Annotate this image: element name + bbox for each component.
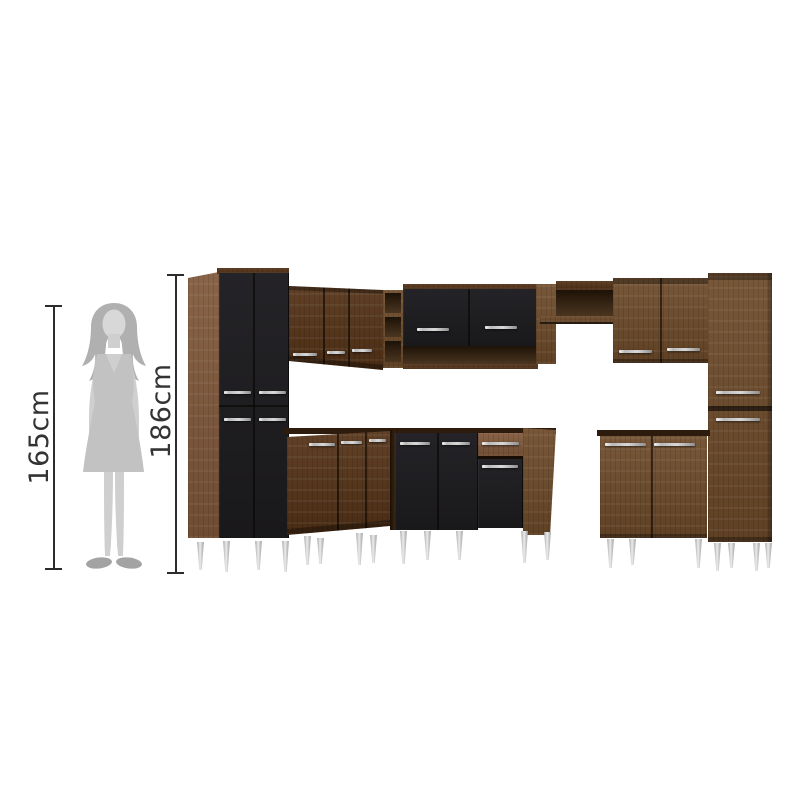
shelf-niche (385, 341, 401, 362)
furniture-dimension-cap-bottom (167, 572, 184, 574)
drawer-front (478, 433, 523, 456)
door-handle (667, 348, 700, 351)
silhouette-left-leg (104, 472, 113, 556)
cabinet-bottom-edge (708, 537, 772, 542)
bridge-shelf (540, 316, 613, 324)
door-handle (654, 443, 695, 446)
cabinet-leg (543, 532, 552, 560)
base-door-seam (365, 431, 367, 535)
person-dimension-cap-top (45, 305, 62, 307)
cabinet-leg (764, 543, 773, 568)
door-handle (259, 391, 286, 394)
pantry-front-doors (219, 273, 289, 538)
door-handle (327, 351, 345, 354)
cabinet-leg (628, 539, 637, 565)
wall-cabinet-right (613, 278, 708, 363)
cabinet-leg (727, 543, 736, 568)
door-handle (309, 443, 335, 446)
shelf-niche (385, 293, 401, 313)
cabinet-leg (281, 541, 290, 572)
wall-run-bottom-edge (289, 356, 383, 371)
cabinet-leg (399, 531, 408, 564)
cabinet-leg (355, 533, 364, 565)
door-handle (442, 442, 470, 445)
corner-wall-cabinet-left (289, 283, 383, 372)
furniture-dimension-cap-top (167, 274, 184, 276)
drawer-handle (482, 442, 519, 445)
door-handle (417, 328, 449, 331)
door-handle (352, 349, 372, 352)
base-door-seam (437, 433, 439, 530)
cabinet-leg (303, 536, 312, 565)
cabinet-leg (222, 541, 231, 572)
tall-cabinet-seam (708, 406, 772, 411)
person-dimension-cap-bottom (45, 568, 62, 570)
wall-door-seam (348, 283, 350, 372)
base-cabinet-right (600, 436, 707, 538)
door-handle (224, 418, 251, 421)
cabinet-bottom-edge (613, 359, 708, 363)
cabinet-leg (254, 541, 263, 570)
base-end-panel (523, 428, 556, 535)
cabinet-leg (423, 531, 432, 560)
wall-run-top-edge (289, 285, 383, 294)
door-handle (605, 443, 646, 446)
silhouette-right-shoe (115, 556, 142, 570)
person-height-label: 165cm (25, 382, 55, 492)
bridge-open-compartment (556, 290, 613, 316)
cabinet-leg (369, 535, 378, 563)
door-handle (716, 418, 760, 421)
door-handle (293, 353, 317, 356)
cabinet-leg (316, 538, 325, 564)
wall-door-seam (660, 278, 662, 363)
wall-end-panel (536, 284, 556, 364)
cabinet-leg (455, 531, 464, 560)
base-door-seam (651, 436, 653, 538)
cabinet-bottom-edge (600, 534, 707, 538)
door-handle (482, 465, 518, 468)
door-handle (485, 326, 517, 329)
base-cabinet-center-doors (395, 433, 478, 530)
silhouette-left-shoe (85, 556, 112, 570)
cabinet-leg (694, 539, 703, 568)
silhouette-neck (108, 334, 120, 348)
wall-open-niche (403, 346, 538, 364)
pantry-door-seam-horizontal (219, 405, 289, 407)
shelf-niche (385, 317, 401, 337)
furniture-height-label: 186cm (147, 356, 177, 466)
bridge-top-panel (556, 281, 613, 290)
door-handle (224, 391, 251, 394)
base-drawer-unit (478, 433, 523, 528)
tall-cabinet-right (708, 273, 772, 542)
cabinet-leg (713, 543, 722, 571)
product-dimension-image: 165cm 186cm (0, 0, 800, 800)
cabinet-leg (196, 542, 205, 570)
cabinet-top-edge (708, 273, 772, 280)
cabinet-leg (520, 531, 529, 563)
door-handle (259, 418, 286, 421)
corner-base-cabinet-left (287, 431, 390, 535)
pantry-side-panel (188, 272, 219, 538)
wall-door-seam (468, 289, 470, 346)
door-handle (619, 350, 652, 353)
door-handle (716, 391, 760, 394)
door-handle (369, 439, 386, 442)
drawer-unit-door (478, 459, 523, 528)
wall-niche-bottom-board (403, 364, 538, 369)
door-handle (400, 442, 430, 445)
open-shelf-column (383, 290, 403, 368)
base-door-seam (337, 431, 339, 535)
wall-cabinet-center-doors (403, 289, 538, 346)
cabinet-leg (752, 543, 761, 571)
cabinet-leg (606, 539, 615, 568)
silhouette-right-leg (115, 472, 124, 556)
door-handle (341, 441, 362, 444)
